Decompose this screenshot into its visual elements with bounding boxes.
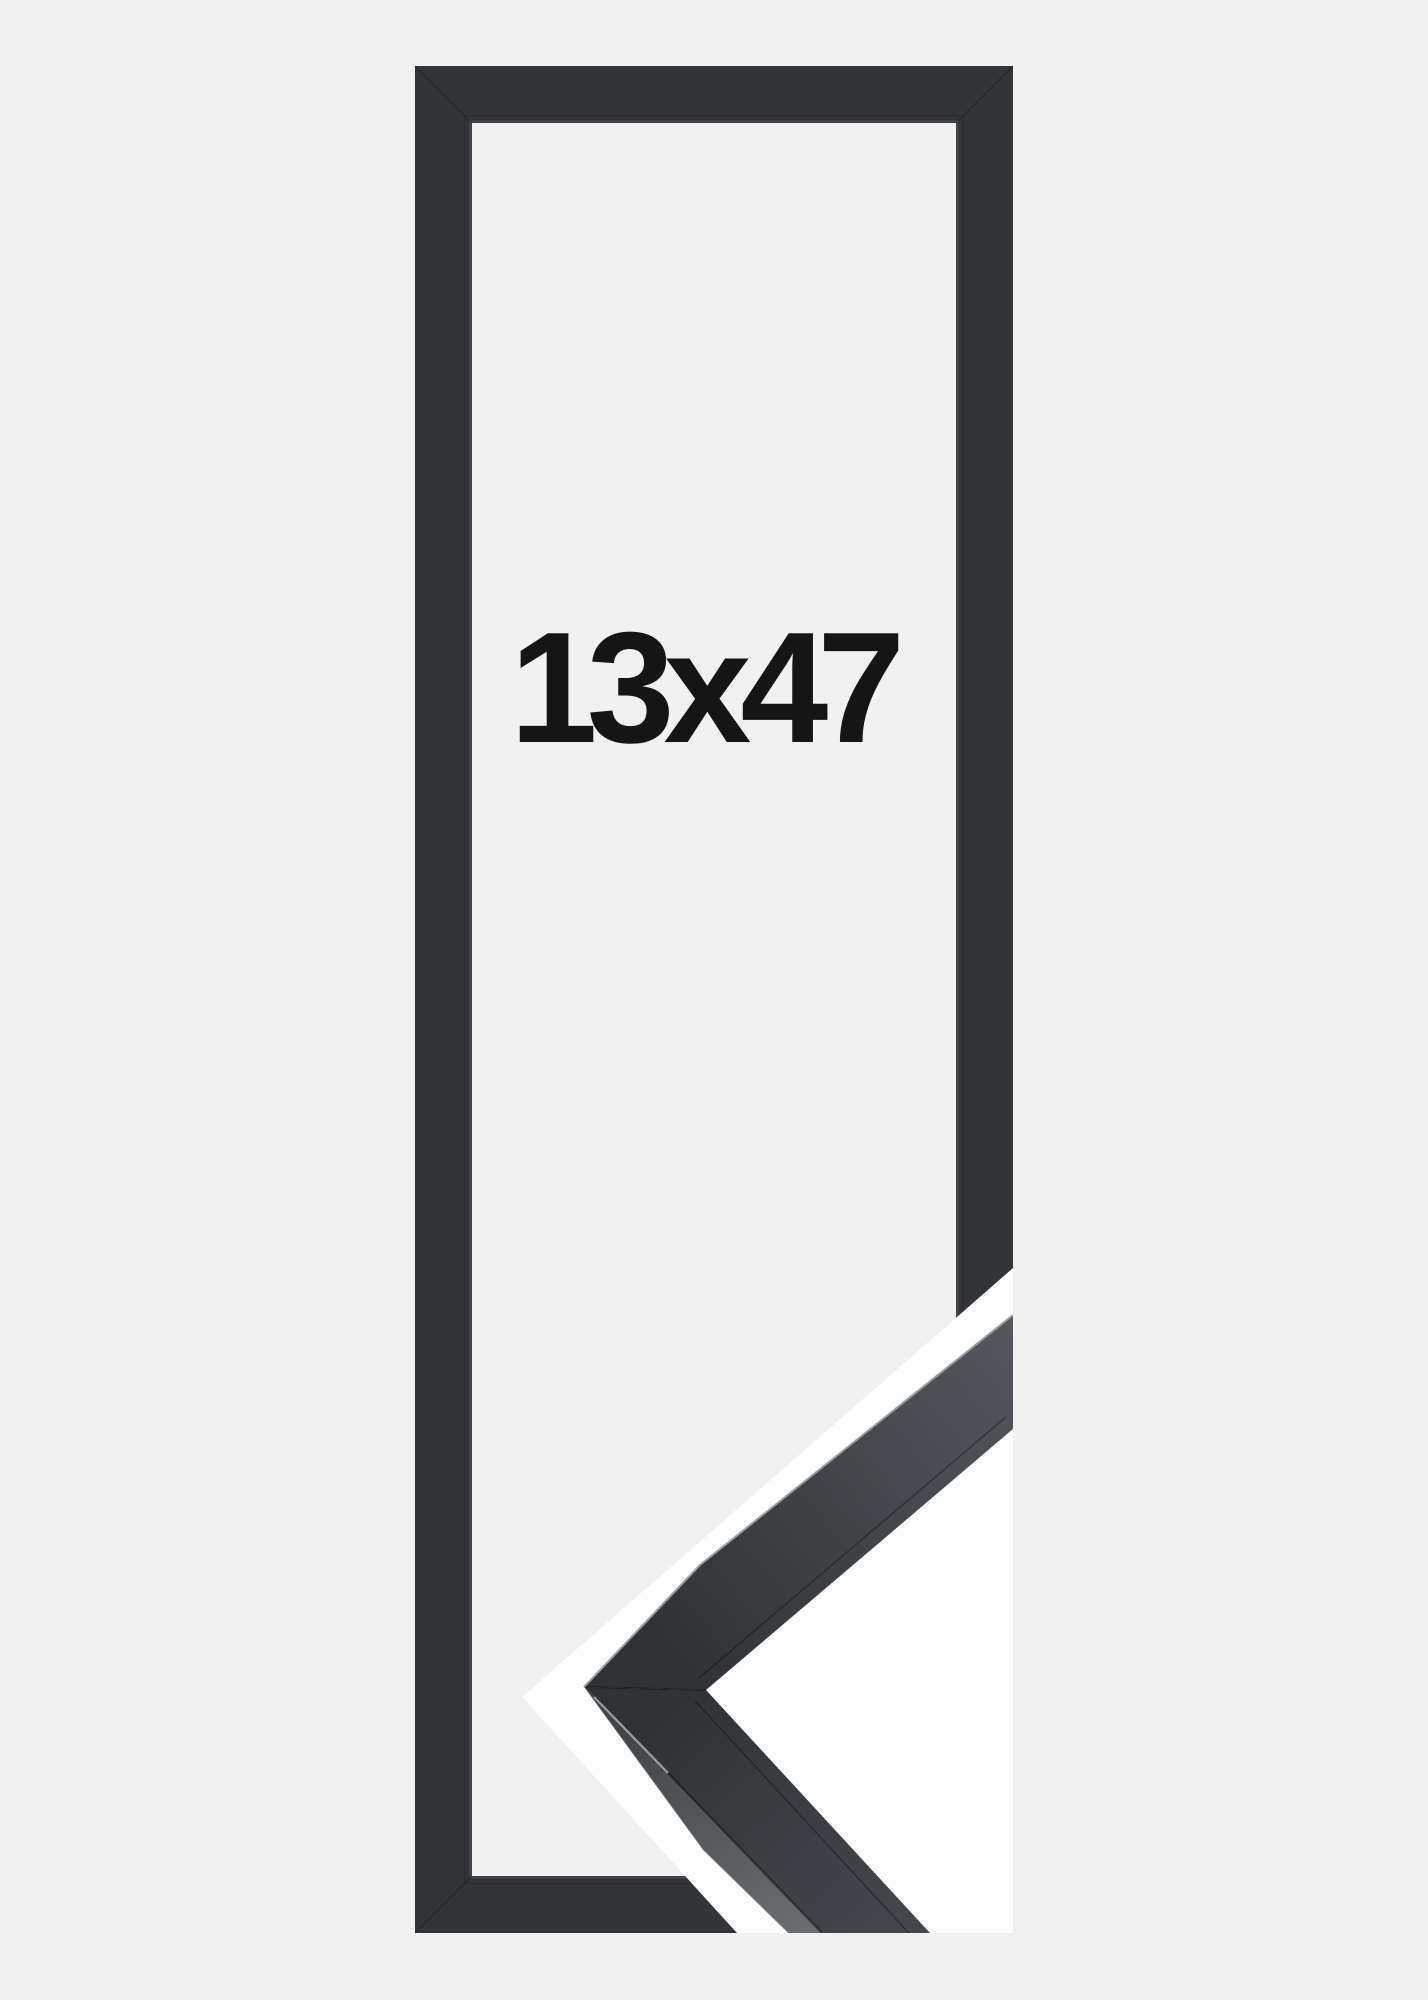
frame-product-illustration: 13x47 [0, 0, 1428, 2000]
product-image-stage: 13x47 [0, 0, 1428, 2000]
size-label: 13x47 [510, 600, 898, 776]
